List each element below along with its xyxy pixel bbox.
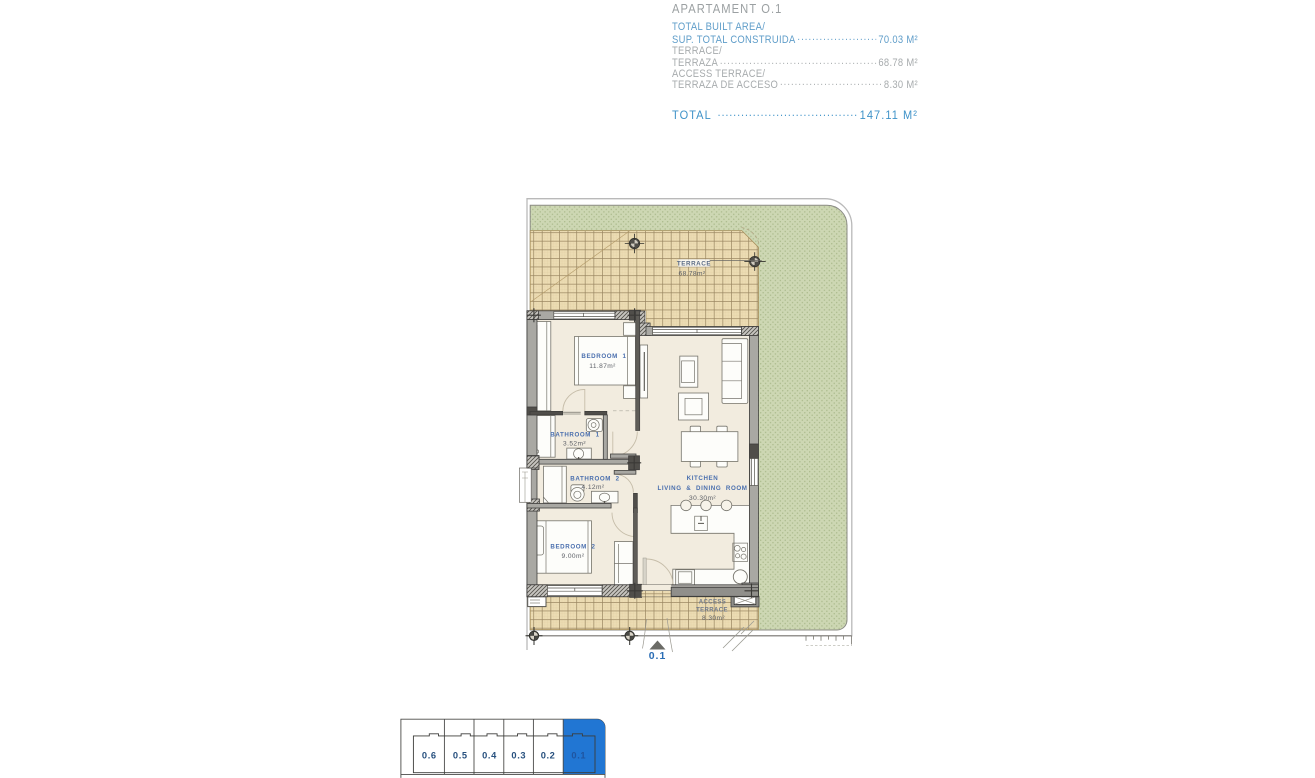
svg-text:9.00m²: 9.00m²: [562, 553, 585, 560]
svg-text:68.78m²: 68.78m²: [679, 271, 706, 278]
svg-text:0.6: 0.6: [422, 750, 437, 760]
svg-text:BATHROOM 2: BATHROOM 2: [570, 476, 619, 483]
svg-text:BEDROOM 2: BEDROOM 2: [550, 544, 595, 551]
svg-text:BATHROOM 1: BATHROOM 1: [550, 432, 599, 439]
svg-text:0.2: 0.2: [541, 750, 556, 760]
svg-text:8.30m²: 8.30m²: [702, 615, 725, 622]
svg-text:11.87m²: 11.87m²: [589, 363, 616, 370]
svg-text:LIVING & DINING ROOM: LIVING & DINING ROOM: [657, 485, 747, 492]
svg-text:ACCESS: ACCESS: [699, 600, 726, 606]
svg-text:0.3: 0.3: [511, 750, 526, 760]
svg-text:30.30m²: 30.30m²: [689, 495, 716, 502]
svg-text:KITCHEN: KITCHEN: [687, 475, 719, 482]
svg-text:0.4: 0.4: [482, 750, 497, 760]
svg-text:0.5: 0.5: [453, 750, 468, 760]
svg-text:0.1: 0.1: [649, 650, 667, 662]
svg-text:0.1: 0.1: [571, 750, 586, 760]
svg-text:3.52m²: 3.52m²: [563, 441, 586, 448]
svg-text:TERRACE: TERRACE: [696, 608, 728, 614]
svg-text:4.12m²: 4.12m²: [582, 484, 605, 491]
svg-text:BEDROOM 1: BEDROOM 1: [581, 353, 626, 360]
svg-text:TERRACE: TERRACE: [677, 261, 711, 268]
